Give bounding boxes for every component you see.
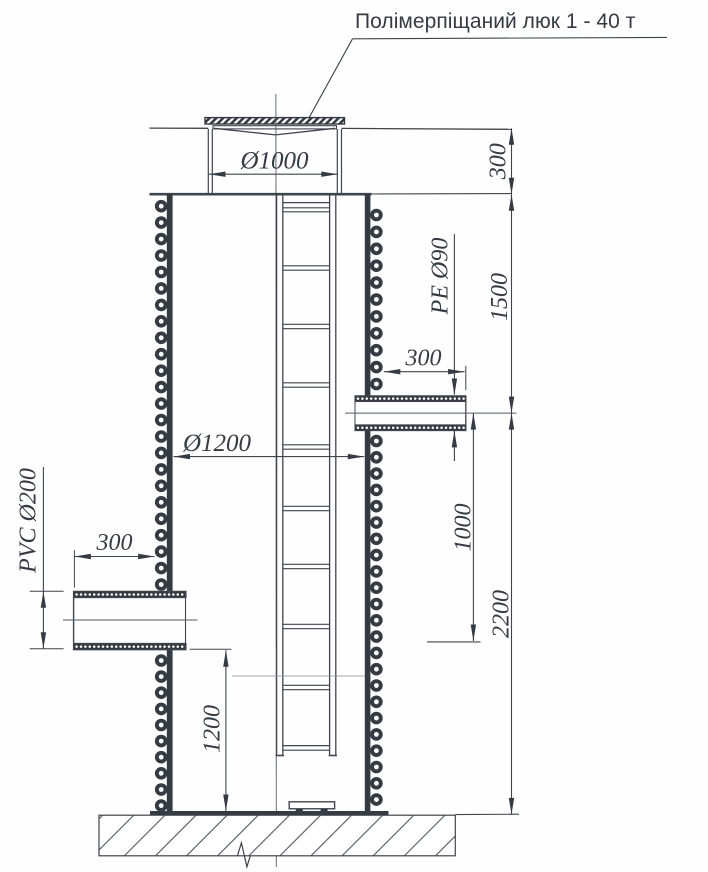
- svg-text:PVC Ø200: PVC Ø200: [16, 468, 42, 574]
- svg-text:1000: 1000: [451, 504, 477, 552]
- svg-text:2200: 2200: [489, 590, 515, 638]
- svg-text:PE Ø90: PE Ø90: [428, 238, 454, 316]
- svg-text:Ø1000: Ø1000: [239, 148, 309, 175]
- svg-text:300: 300: [486, 143, 512, 180]
- svg-text:300: 300: [405, 346, 442, 372]
- svg-text:Ø1200: Ø1200: [182, 430, 252, 457]
- svg-text:1500: 1500: [487, 273, 513, 321]
- svg-text:300: 300: [96, 530, 133, 556]
- svg-text:Полімерпіщаний люк 1 - 40 т: Полімерпіщаний люк 1 - 40 т: [355, 10, 636, 33]
- svg-text:1200: 1200: [200, 705, 226, 753]
